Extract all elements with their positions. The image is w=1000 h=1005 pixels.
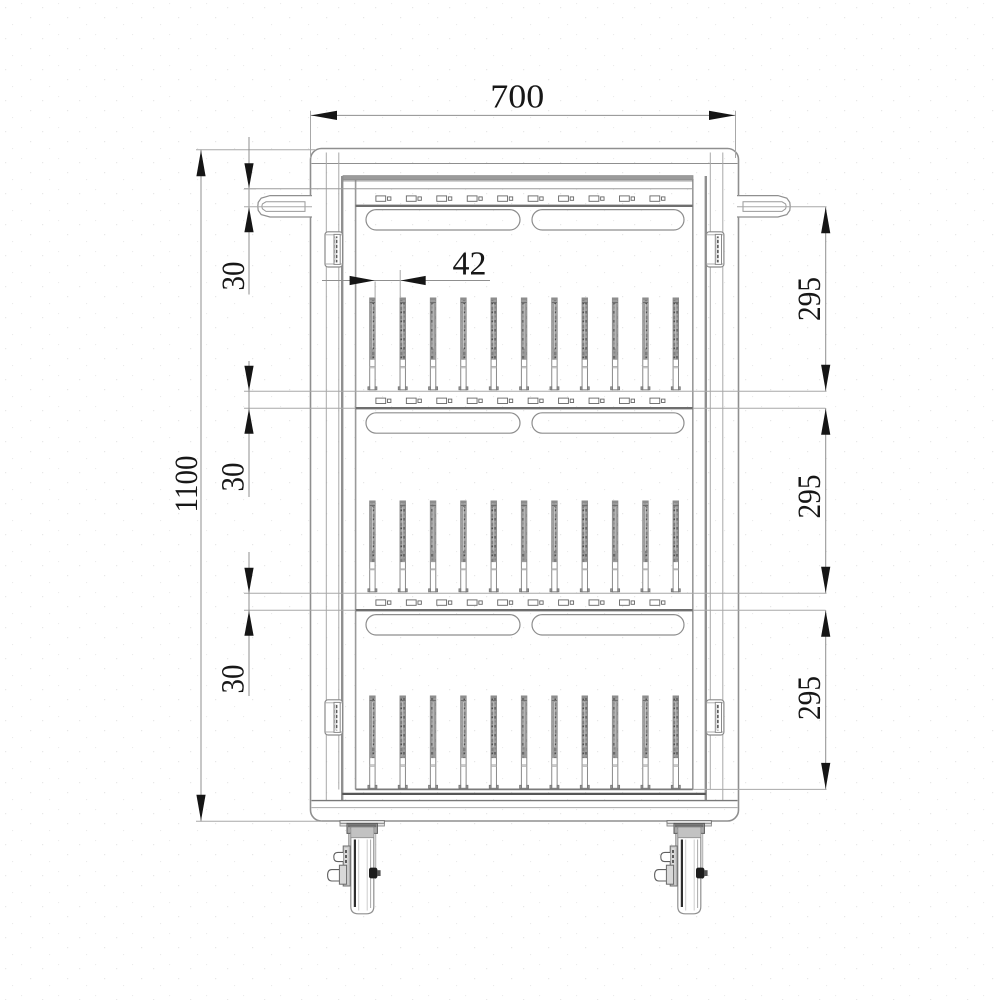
svg-text:30: 30	[216, 665, 252, 694]
svg-text:30: 30	[216, 262, 252, 291]
svg-text:30: 30	[216, 463, 252, 492]
svg-text:295: 295	[792, 277, 828, 321]
svg-text:295: 295	[792, 475, 828, 519]
svg-text:42: 42	[453, 246, 487, 283]
svg-text:1100: 1100	[169, 456, 205, 513]
svg-text:295: 295	[792, 676, 828, 720]
svg-text:700: 700	[490, 79, 544, 116]
